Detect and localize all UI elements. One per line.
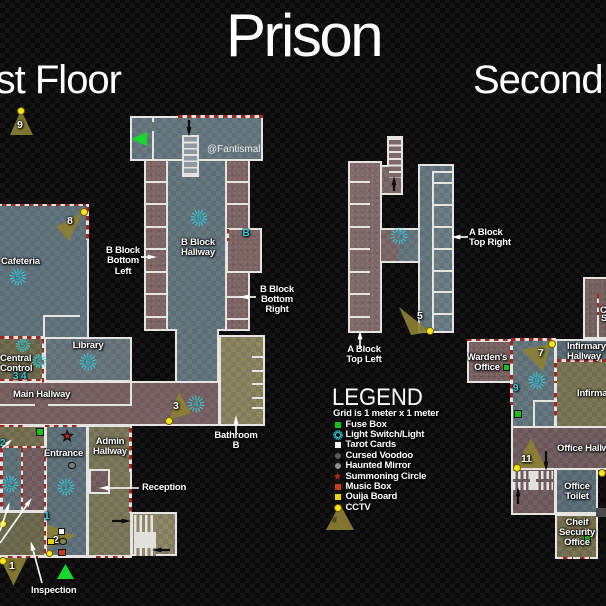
svg-text:5: 5 <box>15 272 20 282</box>
svg-text:4: 4 <box>193 399 198 409</box>
svg-text:5: 5 <box>21 341 26 350</box>
svg-text:1: 1 <box>63 482 68 492</box>
svg-text:6: 6 <box>85 357 90 367</box>
svg-text:2: 2 <box>7 480 12 490</box>
svg-text:8: 8 <box>196 213 201 223</box>
svg-text:9: 9 <box>534 376 539 386</box>
svg-text:7: 7 <box>396 231 401 241</box>
